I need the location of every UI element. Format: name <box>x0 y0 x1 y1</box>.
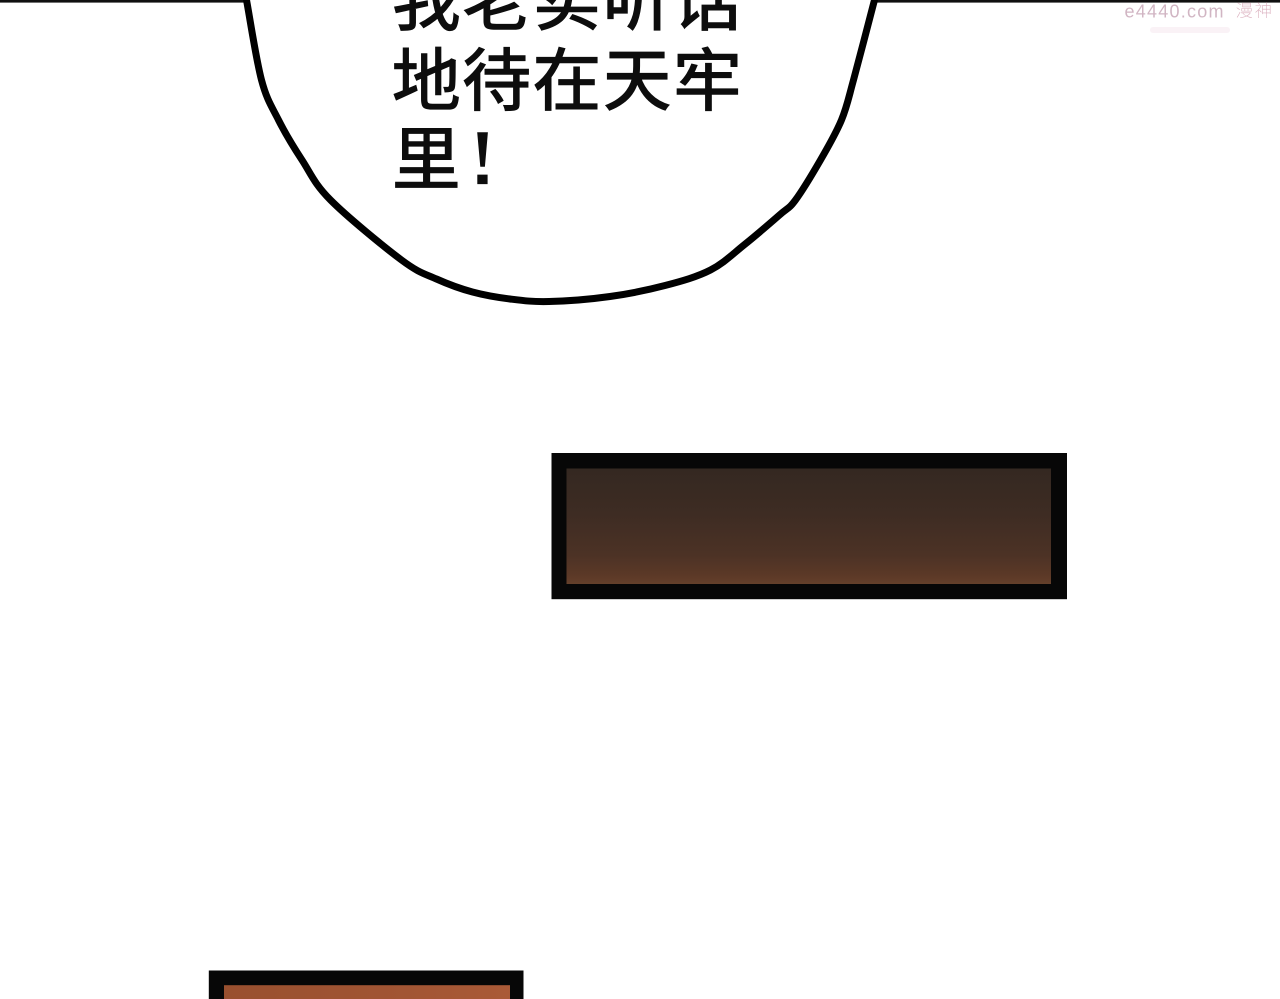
svg-text:e4440.com: e4440.com <box>1125 1 1224 21</box>
